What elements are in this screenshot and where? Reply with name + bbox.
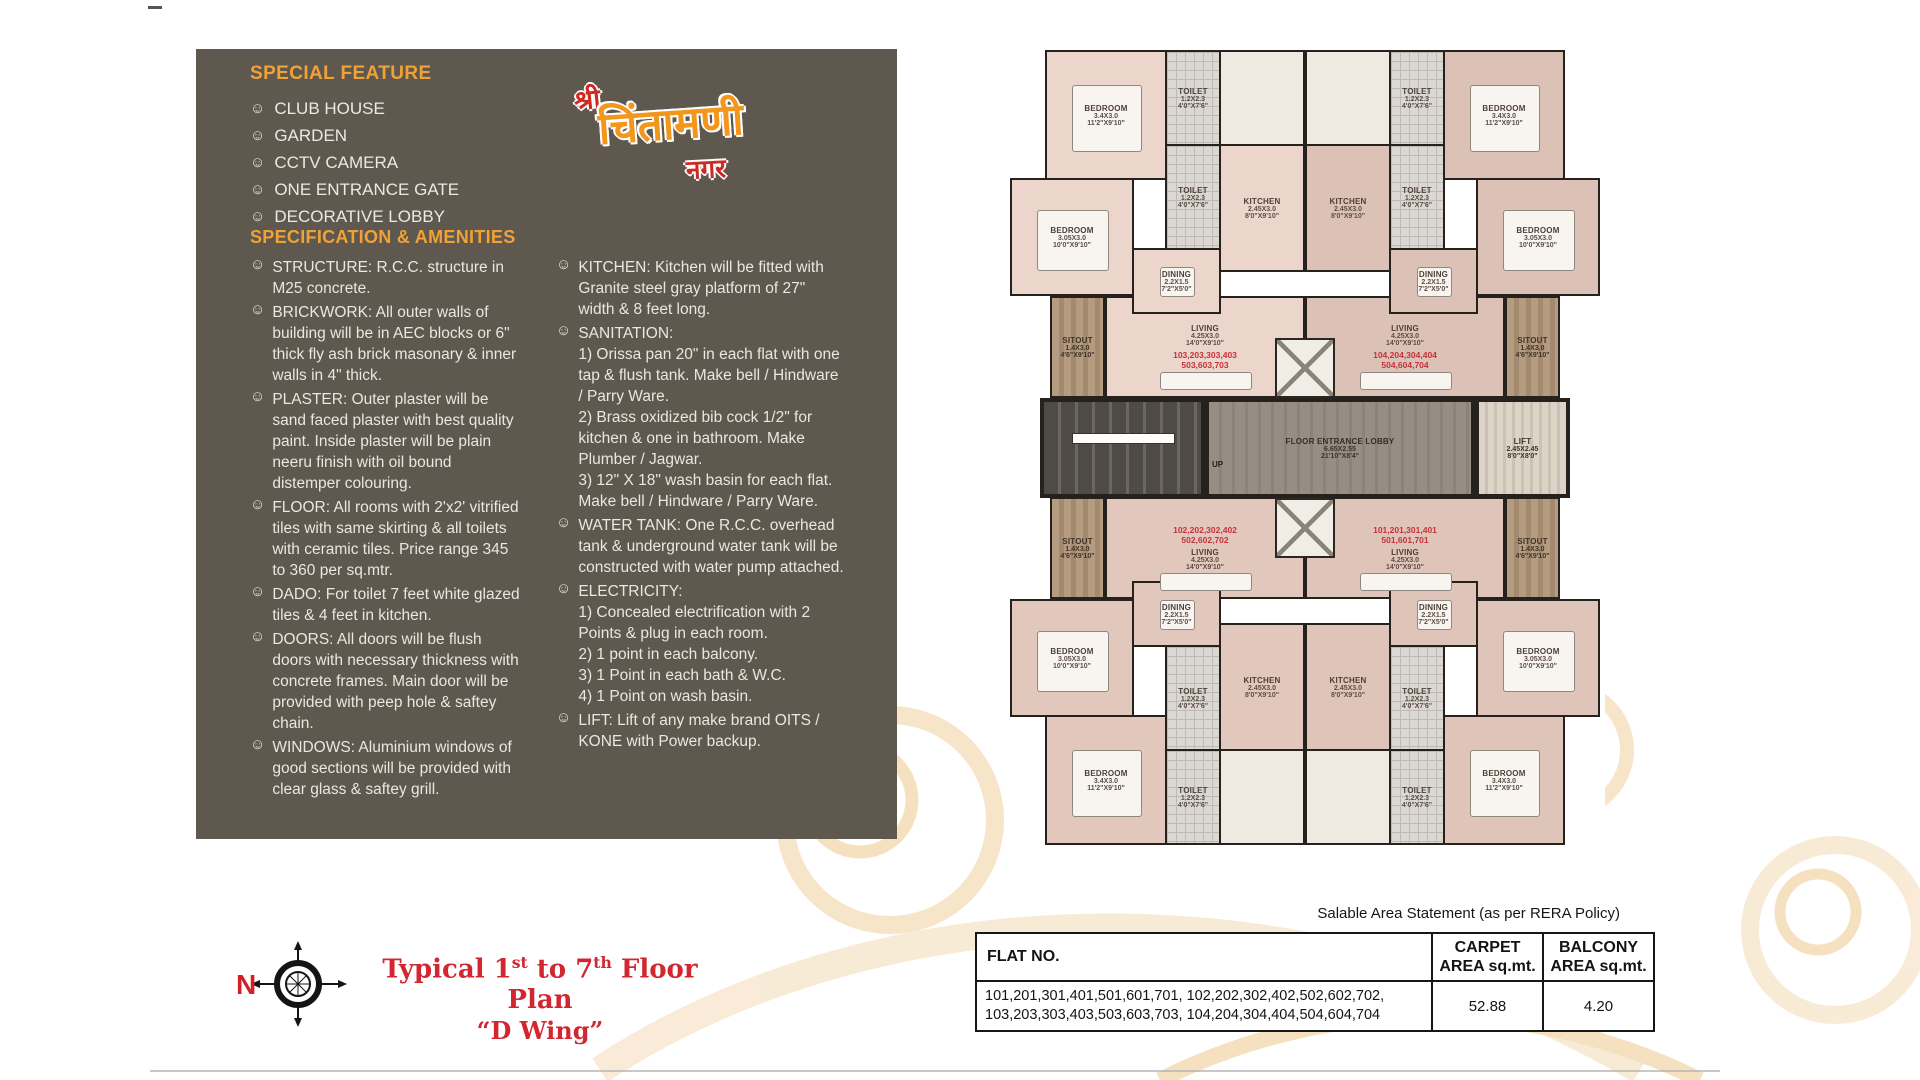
stair-rail — [1072, 433, 1174, 444]
service-shaft — [1305, 749, 1391, 845]
flat-unit: BEDROOM3.4X3.011'2"X9'10" TOILET1.2X2.34… — [1305, 498, 1600, 845]
smiley-bullet-icon: ☺ — [250, 209, 265, 224]
feature-item: ☺CLUB HOUSE — [250, 95, 459, 122]
flat-numbers: 103,203,303,403 503,603,703 — [1173, 350, 1237, 370]
feature-label: CLUB HOUSE — [274, 99, 385, 119]
kitchen: KITCHEN2.45X3.08'0"X9'10" — [1305, 144, 1391, 272]
spec-text: PLASTER: Outer plaster will be sand face… — [272, 389, 522, 494]
spec-text: WATER TANK: One R.C.C. overhead tank & u… — [578, 515, 844, 578]
bedroom-small: BEDROOM3.05X3.010'0"X9'10" — [1476, 178, 1600, 296]
feature-item: ☺CCTV CAMERA — [250, 149, 459, 176]
kitchen: KITCHEN2.45X3.08'0"X9'10" — [1219, 623, 1305, 751]
spec-item: ☺SANITATION: 1) Orissa pan 20" in each f… — [556, 323, 844, 512]
spec-text: DOORS: All doors will be flush doors wit… — [272, 629, 522, 734]
toilet: TOILET1.2X2.34'0"X7'6" — [1389, 50, 1445, 146]
feature-label: GARDEN — [274, 126, 347, 146]
floor-plan: BEDROOM3.4X3.011'2"X9'10" TOILET1.2X2.34… — [1005, 50, 1605, 845]
sitout-balcony: SITOUT1.4X3.04'6"X9'10" — [1505, 296, 1560, 398]
central-core: UP FLOOR ENTRANCE LOBBY6.65X2.5521'10"X8… — [1040, 398, 1570, 498]
bedroom-large: BEDROOM3.4X3.011'2"X9'10" — [1443, 715, 1565, 845]
smiley-bullet-icon: ☺ — [556, 710, 571, 752]
feature-label: ONE ENTRANCE GATE — [274, 180, 459, 200]
smiley-bullet-icon: ☺ — [250, 389, 265, 494]
flat-numbers: 102,202,302,402 502,602,702 — [1173, 525, 1237, 545]
floor-plan-title-line2: “D Wing” — [380, 1015, 700, 1047]
toilet: TOILET1.2X2.34'0"X7'6" — [1165, 144, 1221, 250]
spec-text: KITCHEN: Kitchen will be fitted with Gra… — [578, 257, 844, 320]
column-header-carpet-area: CARPET AREA sq.mt. — [1432, 933, 1543, 981]
kitchen: KITCHEN2.45X3.08'0"X9'10" — [1305, 623, 1391, 751]
cell-flat-numbers: 101,201,301,401,501,601,701, 102,202,302… — [976, 981, 1432, 1031]
smiley-bullet-icon: ☺ — [556, 581, 571, 707]
table-caption: Salable Area Statement (as per RERA Poli… — [975, 905, 1624, 922]
bottom-trim-line — [150, 1070, 1720, 1072]
spec-column-right: ☺KITCHEN: Kitchen will be fitted with Gr… — [556, 257, 844, 752]
sitout-balcony: SITOUT1.4X3.04'6"X9'10" — [1505, 497, 1560, 599]
toilet: TOILET1.2X2.34'0"X7'6" — [1165, 645, 1221, 751]
spec-item: ☺DOORS: All doors will be flush doors wi… — [250, 629, 522, 734]
smiley-bullet-icon: ☺ — [250, 128, 265, 143]
smiley-bullet-icon: ☺ — [250, 584, 265, 626]
table-header-row: FLAT NO. CARPET AREA sq.mt. BALCONY AREA… — [976, 933, 1654, 981]
toilet: TOILET1.2X2.34'0"X7'6" — [1389, 645, 1445, 751]
north-compass-icon: N — [236, 940, 352, 1028]
spec-item: ☺BRICKWORK: All outer walls of building … — [250, 302, 522, 386]
lift: LIFT2.45X2.458'0"X8'0" — [1475, 398, 1570, 498]
sofa-icon — [1160, 372, 1252, 390]
spec-item: ☺FLOOR: All rooms with 2'x2' vitrified t… — [250, 497, 522, 581]
toilet: TOILET1.2X2.34'0"X7'6" — [1389, 749, 1445, 845]
cell-carpet-area: 52.88 — [1432, 981, 1543, 1031]
spec-text: FLOOR: All rooms with 2'x2' vitrified ti… — [272, 497, 522, 581]
service-shaft — [1305, 50, 1391, 146]
smiley-bullet-icon: ☺ — [556, 515, 571, 578]
floor-plan-title: Typical 1st to 7th Floor Plan “D Wing” — [380, 948, 700, 1047]
feature-item: ☺GARDEN — [250, 122, 459, 149]
smiley-bullet-icon: ☺ — [250, 257, 265, 299]
bedroom-large: BEDROOM3.4X3.011'2"X9'10" — [1045, 715, 1167, 845]
spec-amenities-heading: SPECIFICATION & AMENITIES — [250, 227, 516, 248]
spec-item: ☺WATER TANK: One R.C.C. overhead tank & … — [556, 515, 844, 578]
spec-text: SANITATION: 1) Orissa pan 20" in each fl… — [578, 323, 844, 512]
feature-item: ☺DECORATIVE LOBBY — [250, 203, 459, 230]
project-logo: श्री चिंतामणी नगर — [568, 58, 798, 188]
spec-text: BRICKWORK: All outer walls of building w… — [272, 302, 522, 386]
spec-text: STRUCTURE: R.C.C. structure in M25 concr… — [272, 257, 522, 299]
smiley-bullet-icon: ☺ — [250, 101, 265, 116]
bedroom-small: BEDROOM3.05X3.010'0"X9'10" — [1010, 178, 1134, 296]
feature-label: DECORATIVE LOBBY — [274, 207, 445, 227]
logo-name-text: चिंतामणी — [596, 87, 745, 157]
trim-mark — [148, 6, 162, 9]
special-feature-heading: SPECIAL FEATURE — [250, 63, 432, 85]
spec-column-left: ☺STRUCTURE: R.C.C. structure in M25 conc… — [250, 257, 522, 800]
sitout-balcony: SITOUT1.4X3.04'6"X9'10" — [1050, 296, 1105, 398]
spec-item: ☺WINDOWS: Aluminium windows of good sect… — [250, 737, 522, 800]
smiley-bullet-icon: ☺ — [250, 155, 265, 170]
spec-item: ☺ELECTRICITY: 1) Concealed electrificati… — [556, 581, 844, 707]
smiley-bullet-icon: ☺ — [556, 257, 571, 320]
floor-entrance-lobby: FLOOR ENTRANCE LOBBY6.65X2.5521'10"X8'4" — [1205, 398, 1475, 498]
spec-item: ☺DADO: For toilet 7 feet white glazed ti… — [250, 584, 522, 626]
column-header-balcony-area: BALCONY AREA sq.mt. — [1543, 933, 1654, 981]
toilet: TOILET1.2X2.34'0"X7'6" — [1389, 144, 1445, 250]
bedroom-large: BEDROOM3.4X3.011'2"X9'10" — [1045, 50, 1167, 180]
bedroom-small: BEDROOM3.05X3.010'0"X9'10" — [1010, 599, 1134, 717]
service-shaft — [1219, 749, 1305, 845]
spec-item: ☺STRUCTURE: R.C.C. structure in M25 conc… — [250, 257, 522, 299]
duct-shaft — [1275, 338, 1335, 398]
spec-text: DADO: For toilet 7 feet white glazed til… — [272, 584, 522, 626]
spec-text: ELECTRICITY: 1) Concealed electrificatio… — [578, 581, 844, 707]
staircase — [1040, 398, 1205, 498]
special-feature-list: ☺CLUB HOUSE ☺GARDEN ☺CCTV CAMERA ☺ONE EN… — [250, 95, 459, 230]
smiley-bullet-icon: ☺ — [250, 629, 265, 734]
smiley-bullet-icon: ☺ — [556, 323, 571, 512]
smiley-bullet-icon: ☺ — [250, 182, 265, 197]
feature-item: ☺ONE ENTRANCE GATE — [250, 176, 459, 203]
flat-unit: BEDROOM3.4X3.011'2"X9'10" TOILET1.2X2.34… — [1010, 50, 1305, 398]
flat-numbers: 104,204,304,404 504,604,704 — [1373, 350, 1437, 370]
kitchen: KITCHEN2.45X3.08'0"X9'10" — [1219, 144, 1305, 272]
logo-nagar-text: नगर — [685, 149, 727, 187]
table-row: 101,201,301,401,501,601,701, 102,202,302… — [976, 981, 1654, 1031]
column-header-flat-no: FLAT NO. — [976, 933, 1432, 981]
spec-text: LIFT: Lift of any make brand OITS / KONE… — [578, 710, 844, 752]
bedroom-large: BEDROOM3.4X3.011'2"X9'10" — [1443, 50, 1565, 180]
dining: DINING2.2X1.57'2"X5'0" — [1132, 248, 1221, 314]
salable-area-table: FLAT NO. CARPET AREA sq.mt. BALCONY AREA… — [975, 932, 1655, 1032]
smiley-bullet-icon: ☺ — [250, 302, 265, 386]
flat-numbers: 101,201,301,401 501,601,701 — [1373, 525, 1437, 545]
sofa-icon — [1360, 573, 1452, 591]
spec-item: ☺PLASTER: Outer plaster will be sand fac… — [250, 389, 522, 494]
dining: DINING2.2X1.57'2"X5'0" — [1389, 248, 1478, 314]
spec-item: ☺KITCHEN: Kitchen will be fitted with Gr… — [556, 257, 844, 320]
cell-balcony-area: 4.20 — [1543, 981, 1654, 1031]
spec-text: WINDOWS: Aluminium windows of good secti… — [272, 737, 522, 800]
sitout-balcony: SITOUT1.4X3.04'6"X9'10" — [1050, 497, 1105, 599]
brochure-page: SPECIAL FEATURE ☺CLUB HOUSE ☺GARDEN ☺CCT… — [0, 0, 1920, 1080]
toilet: TOILET1.2X2.34'0"X7'6" — [1165, 50, 1221, 146]
floor-plan-title-line1: Typical 1st to 7th Floor Plan — [380, 948, 700, 1015]
sofa-icon — [1360, 372, 1452, 390]
smiley-bullet-icon: ☺ — [250, 737, 265, 800]
duct-shaft — [1275, 498, 1335, 558]
toilet: TOILET1.2X2.34'0"X7'6" — [1165, 749, 1221, 845]
flat-unit: BEDROOM3.4X3.011'2"X9'10" TOILET1.2X2.34… — [1010, 498, 1305, 845]
stairs-up-label: UP — [1212, 460, 1223, 469]
svg-text:N: N — [236, 969, 256, 1000]
feature-label: CCTV CAMERA — [274, 153, 398, 173]
service-shaft — [1219, 50, 1305, 146]
sofa-icon — [1160, 573, 1252, 591]
smiley-bullet-icon: ☺ — [250, 497, 265, 581]
flat-unit: BEDROOM3.4X3.011'2"X9'10" TOILET1.2X2.34… — [1305, 50, 1600, 398]
spec-item: ☺LIFT: Lift of any make brand OITS / KON… — [556, 710, 844, 752]
bedroom-small: BEDROOM3.05X3.010'0"X9'10" — [1476, 599, 1600, 717]
